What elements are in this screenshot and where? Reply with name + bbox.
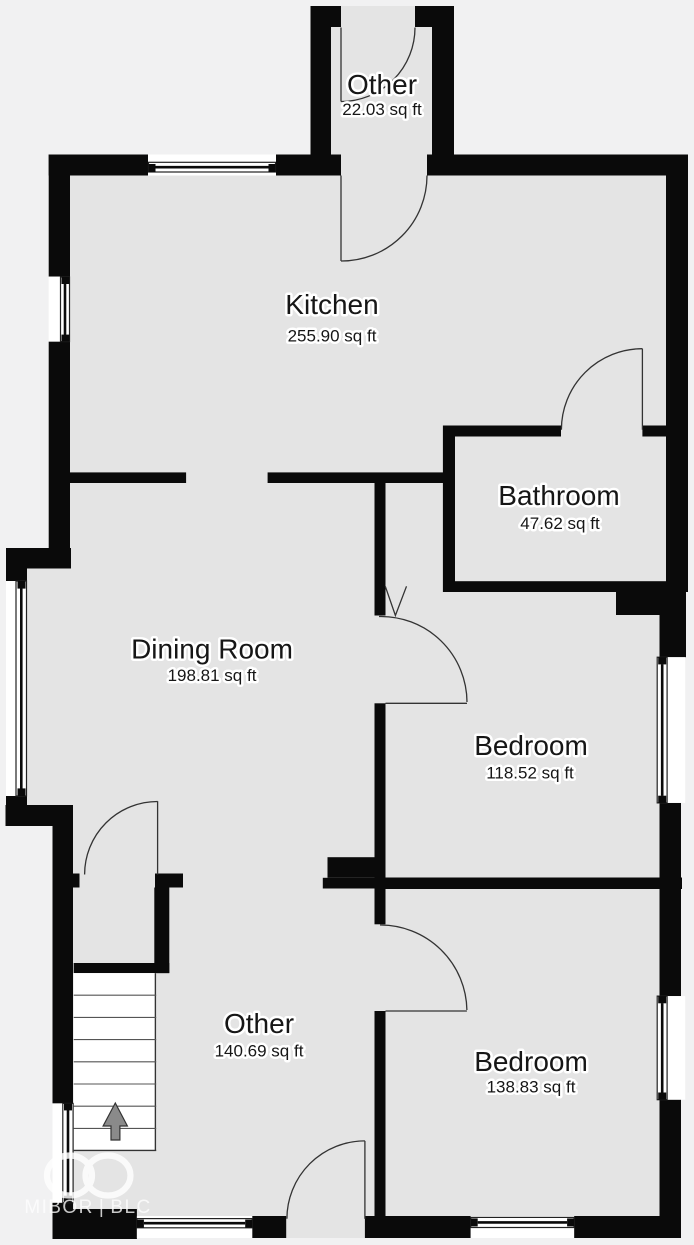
svg-text:198.81 sq ft: 198.81 sq ft [168,666,257,685]
svg-text:255.90 sq ft: 255.90 sq ft [288,327,377,346]
svg-text:47.62 sq ft: 47.62 sq ft [520,514,600,533]
svg-text:140.69 sq ft: 140.69 sq ft [215,1042,304,1061]
svg-text:Bedroom: Bedroom [474,1046,588,1077]
svg-text:118.52 sq ft: 118.52 sq ft [486,764,574,783]
svg-text:Bathroom: Bathroom [498,480,619,511]
svg-text:Dining Room: Dining Room [131,634,293,665]
svg-text:Other: Other [224,1008,294,1039]
svg-text:Bedroom: Bedroom [474,730,588,761]
svg-text:Other: Other [347,69,417,100]
svg-text:Kitchen: Kitchen [285,289,378,320]
svg-text:22.03 sq ft: 22.03 sq ft [342,100,422,119]
svg-text:138.83 sq ft: 138.83 sq ft [487,1078,576,1097]
svg-text:MIBOR | BLC: MIBOR | BLC [24,1197,151,1218]
